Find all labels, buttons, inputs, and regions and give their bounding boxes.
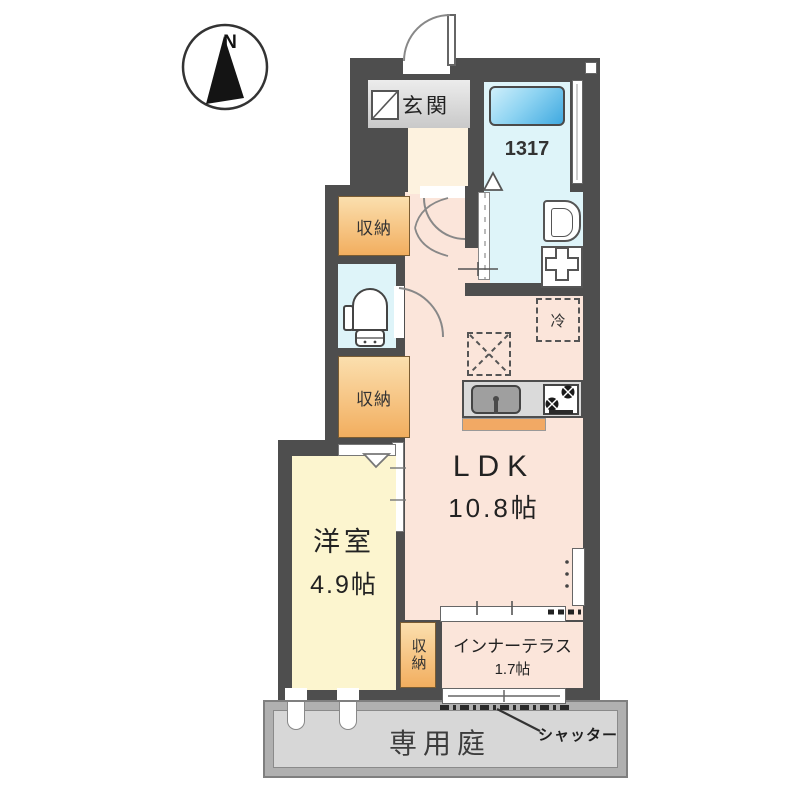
shoe-cabinet-icon (371, 90, 399, 120)
floor-plan: 玄関 1317 収納 収納 冷 LDK 10.8帖 洋室 4.9帖 収納 インナ… (0, 0, 800, 800)
inner-terrace-name-label: インナーテラス (453, 632, 572, 657)
storage-middle: 収納 (338, 356, 410, 438)
room-toilet (338, 264, 396, 348)
closet-door (338, 444, 396, 456)
shutter-line (440, 705, 570, 710)
western-room-label: 洋室 4.9帖 (288, 520, 400, 601)
ldk-window (572, 548, 585, 606)
stove-icon (543, 384, 579, 415)
terrace-sliding-door (440, 606, 566, 622)
washing-machine-pan-icon (541, 246, 583, 288)
washroom-sliding-door (478, 192, 490, 280)
storage-middle-label: 収納 (356, 385, 392, 410)
storage-upper-label: 収納 (356, 214, 392, 239)
floor-hatch (467, 332, 511, 376)
compass-north-label: N (223, 32, 237, 53)
ldk-label: LDK 10.8帖 (405, 450, 583, 525)
pipe-space (585, 62, 597, 74)
bathroom-size-label: 1317 (484, 138, 570, 161)
refrigerator-label: 冷 (550, 310, 565, 331)
kitchen-sink-icon (471, 385, 521, 414)
storage-upper: 収納 (338, 196, 410, 256)
western-room-name-label: 洋室 (288, 520, 400, 559)
bathtub-icon (489, 86, 565, 126)
ldk-size-label: 10.8帖 (405, 488, 583, 525)
terrace-window (442, 688, 566, 704)
storage-terrace: 収納 (400, 622, 436, 688)
inner-terrace-size-label: 1.7帖 (495, 658, 531, 679)
storage-terrace-label: 収納 (408, 638, 429, 672)
compass-icon: N (183, 25, 267, 109)
garden-label: 専用庭 (330, 722, 550, 762)
hall-door-opening (420, 186, 465, 198)
ldk-name-label: LDK (405, 450, 583, 484)
room-inner-terrace: インナーテラス 1.7帖 (442, 622, 583, 688)
counter-edge (462, 418, 546, 431)
toilet-door-opening (394, 286, 404, 338)
refrigerator-space: 冷 (536, 298, 580, 342)
entrance-door-opening (403, 58, 450, 74)
shutter-label: シャッター (538, 724, 630, 745)
wash-basin-icon (543, 200, 581, 242)
wall (465, 186, 478, 248)
casement-window-icon (287, 702, 305, 730)
western-room-size-label: 4.9帖 (288, 565, 400, 601)
bathroom-window (572, 80, 583, 184)
entrance-hall (408, 128, 468, 194)
north-arrow-icon (206, 36, 244, 104)
entrance-label: 玄関 (402, 90, 450, 120)
